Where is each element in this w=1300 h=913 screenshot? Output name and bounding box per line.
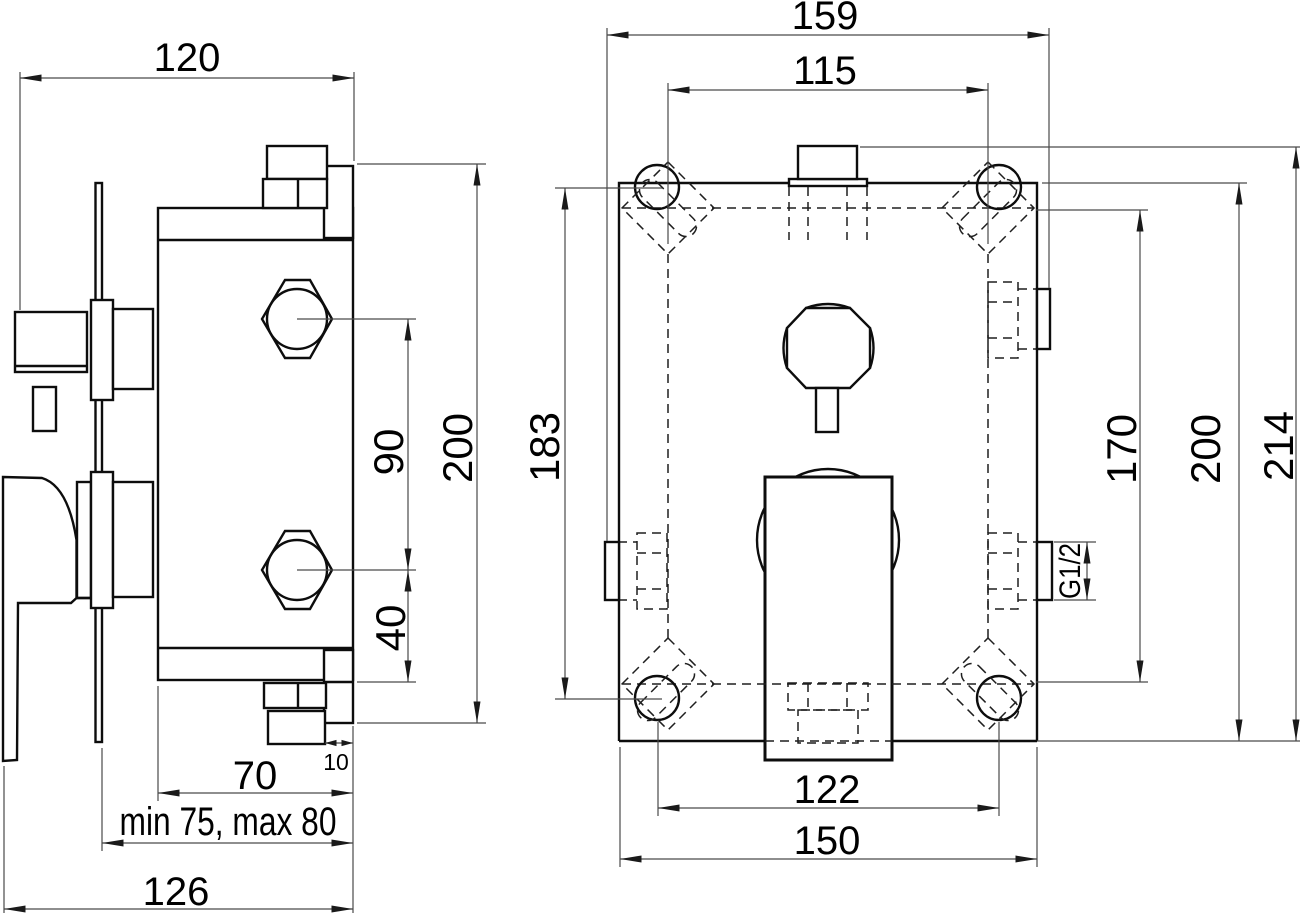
upper-connector [113,309,153,389]
inlet-pipe [15,312,87,372]
front-view [605,146,1052,760]
drawing-canvas: 120 90 200 40 10 70 min 75, max 80 126 1… [0,0,1300,913]
diverter-stem [816,388,838,432]
lower-flange [91,472,113,608]
dim-label-10: 10 [323,749,349,775]
square-cover-plate [765,477,892,760]
bottom-union-cap [268,711,325,744]
dim-label-200-side: 200 [434,413,481,483]
dim-label-120: 120 [154,36,221,80]
top-fitting-knob [798,146,857,179]
side-view [3,146,353,761]
lever-handle [3,477,77,761]
dim-label-122: 122 [794,768,861,812]
top-union-cap [267,146,327,179]
dim-label-115: 115 [793,49,857,93]
top-union-rear [324,166,353,238]
dim-label-150: 150 [794,819,861,863]
bottom-union-nut [264,683,326,708]
diverter-knob [787,308,870,388]
dim-label-90: 90 [365,429,412,476]
dim-label-200-front: 200 [1182,414,1229,484]
lower-connector [113,482,153,597]
mixer-body [158,208,353,680]
dim-label-159: 159 [792,0,859,38]
cartridge-hub [77,482,91,598]
wall-plate-edge [96,183,103,742]
dim-label-183: 183 [521,412,568,482]
top-union-nut [263,179,327,208]
dim-label-126: 126 [143,870,210,913]
inlet-stub [33,387,56,431]
bottom-union-rear [324,650,353,723]
dim-label-min-max: min 75, max 80 [120,800,337,844]
dim-label-70: 70 [233,754,278,798]
dim-label-170: 170 [1098,414,1145,484]
upper-flange [91,300,113,400]
technical-drawing: 120 90 200 40 10 70 min 75, max 80 126 1… [0,0,1300,913]
dim-label-214: 214 [1255,411,1300,481]
dim-label-40: 40 [367,605,414,652]
dim-label-g12-thread: G1/2 [1054,543,1087,599]
